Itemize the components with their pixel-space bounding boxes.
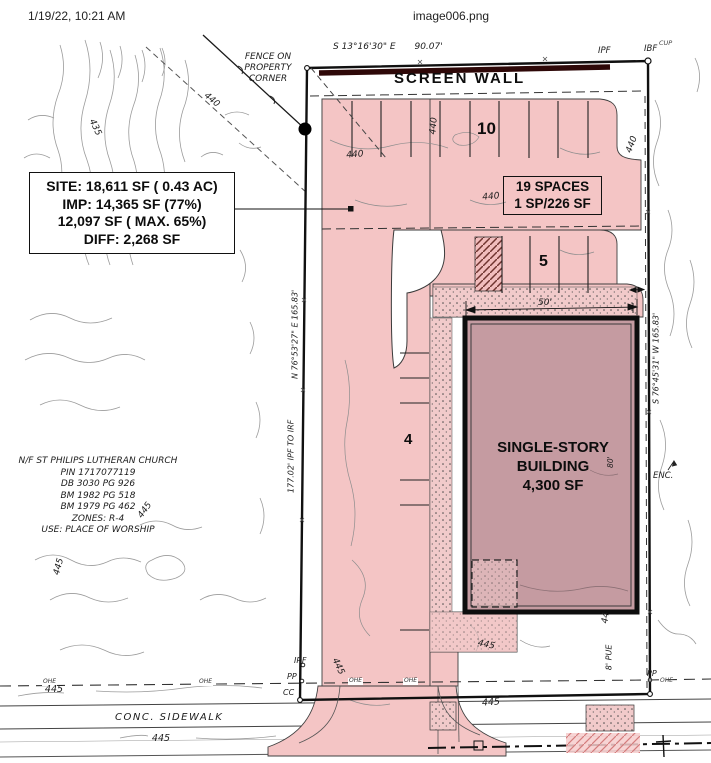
space-count-east: 5	[539, 253, 548, 271]
ohe-tag: OHE	[403, 678, 418, 685]
site-data-line3: 12,097 SF ( MAX. 65%)	[32, 213, 232, 231]
contour-label-440: 440	[429, 115, 441, 138]
enc-label: ENC.	[653, 472, 673, 481]
site-data-box: SITE: 18,611 SF ( 0.43 AC) IMP: 14,365 S…	[29, 172, 235, 254]
ohe-tag: OHE	[198, 679, 213, 686]
tie-distance-west: 177.02' IPF TO IRF	[288, 411, 297, 501]
bearing-north: S 13°16'30" E 90.07'	[333, 43, 443, 53]
fence-note-line2: PROPERTY	[228, 63, 308, 74]
pue-label: 8' PUE	[606, 637, 615, 677]
site-data-line1: SITE: 18,611 SF ( 0.43 AC)	[32, 178, 232, 196]
space-count-top: 10	[477, 120, 496, 139]
fence-note: FENCE ON PROPERTY CORNER	[228, 52, 308, 85]
bearing-west: N 76°53'27" E 165.83'	[292, 284, 301, 384]
owner-line3: DB 3030 PG 926	[8, 479, 188, 491]
contour-label-440: 440	[480, 192, 503, 204]
contour-label-440: 440	[344, 150, 367, 162]
concrete-pad	[586, 705, 634, 731]
bearing-north-distance: 90.07'	[414, 42, 442, 52]
owner-line5: BM 1979 PG 462	[8, 502, 188, 514]
dim-50ft-label: 50'	[538, 299, 552, 309]
parking-box-line2: 1 SP/226 SF	[504, 196, 601, 213]
page-timestamp: 1/19/22, 10:21 AM	[28, 10, 125, 23]
owner-line1: N/F ST PHILIPS LUTHERAN CHURCH	[8, 456, 188, 468]
building-line3: 4,300 SF	[472, 476, 634, 495]
street-hatch-patch	[566, 733, 640, 753]
parking-box-line1: 19 SPACES	[504, 179, 601, 196]
fence-note-line1: FENCE ON	[228, 52, 308, 63]
site-plan-page: 1/19/22, 10:21 AM image006.png S 13°16'3…	[0, 0, 711, 763]
owner-line2: PIN 1717077119	[8, 468, 188, 480]
dashed-pad	[472, 560, 517, 607]
bearing-east: S 76°45'31" W 165.83'	[653, 306, 662, 410]
monument-cc-label: CC	[283, 689, 294, 698]
monument-ipf-label: IPF	[598, 47, 611, 56]
sidewalk-label: CONC. SIDEWALK	[115, 712, 223, 723]
monument-pp-west-label: PP	[287, 673, 297, 682]
adjacent-owner-block: N/F ST PHILIPS LUTHERAN CHURCH PIN 17170…	[8, 456, 188, 537]
owner-line7: USE: PLACE OF WORSHIP	[8, 525, 188, 537]
owner-line6: ZONES: R-4	[8, 514, 188, 526]
site-data-line2: IMP: 14,365 SF (77%)	[32, 196, 232, 214]
monument-irf-label: IRF	[294, 657, 307, 666]
page-filename: image006.png	[413, 10, 489, 23]
monument-cup-label: CUP	[659, 40, 672, 47]
bearing-north-text: S 13°16'30" E	[333, 42, 396, 52]
concrete-pad	[430, 702, 456, 730]
ohe-tag: OHE	[348, 678, 363, 685]
contour-label-445: 445	[150, 734, 172, 744]
space-count-west: 4	[404, 432, 412, 449]
hatched-stall	[475, 237, 502, 291]
parking-count-box: 19 SPACES 1 SP/226 SF	[503, 176, 602, 215]
monument-ibf-label: IBF	[644, 45, 657, 54]
contour-label-445: 445	[480, 697, 503, 709]
dim-80ft-label: 80'	[607, 451, 615, 473]
owner-line4: BM 1982 PG 518	[8, 491, 188, 503]
site-data-line4: DIFF: 2,268 SF	[32, 231, 232, 249]
fence-note-line3: CORNER	[228, 74, 308, 85]
contour-label-445: 445	[43, 685, 65, 695]
screen-wall-label: SCREEN WALL	[394, 71, 525, 88]
ohe-tag-east: OHE	[660, 678, 673, 685]
monument-pp-east-label: PP	[647, 670, 657, 679]
